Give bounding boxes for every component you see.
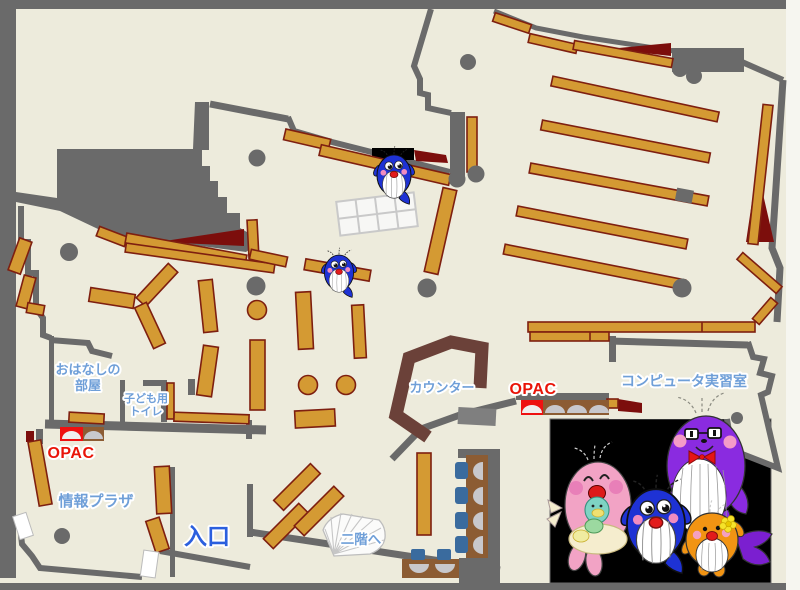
svg-text:部屋: 部屋 [75,378,101,393]
svg-text:子ども用: 子ども用 [124,392,168,405]
svg-text:コンピュータ実習室: コンピュータ実習室 [621,373,747,389]
svg-text:OPAC: OPAC [509,381,556,398]
svg-text:トイレ: トイレ [130,405,163,418]
svg-text:OPAC: OPAC [47,445,94,462]
svg-text:入口: 入口 [184,523,230,549]
svg-text:情報プラザ: 情報プラザ [58,492,133,510]
svg-text:おはなしの: おはなしの [55,362,120,377]
svg-text:二階へ: 二階へ [341,531,382,547]
svg-text:カウンター: カウンター [409,380,474,395]
